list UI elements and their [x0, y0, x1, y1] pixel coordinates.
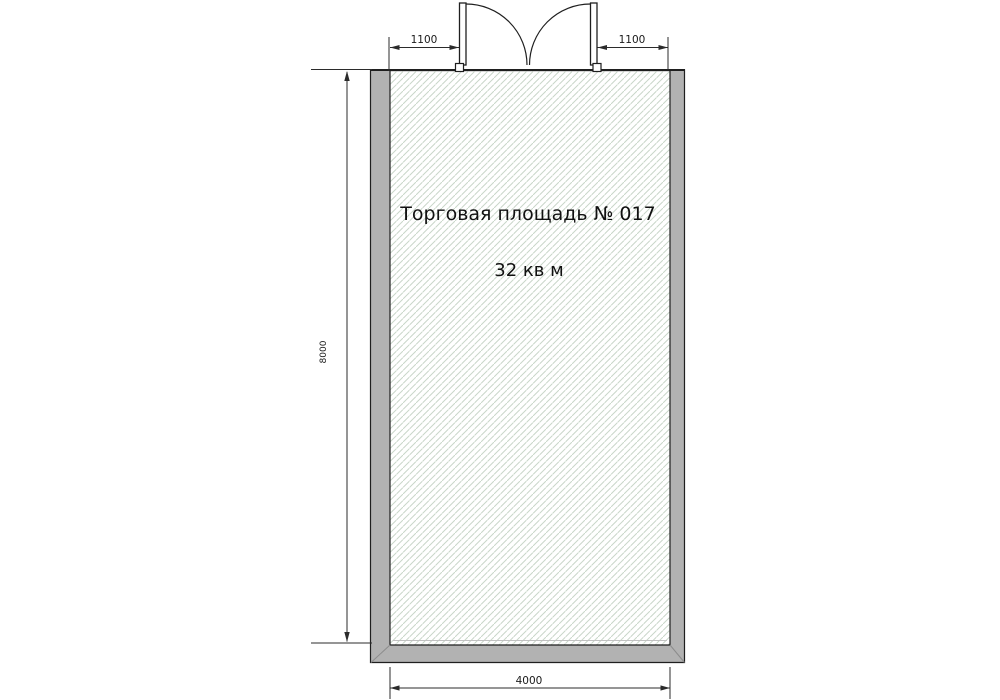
dim-width-value: 4000	[516, 675, 543, 687]
dim-door-left-arrow-west	[390, 45, 400, 50]
room-area-label: 32 кв м	[494, 260, 563, 281]
dim-width-arrow-east	[661, 685, 671, 690]
interior-floor-hatch	[390, 71, 670, 645]
dim-width: 4000	[390, 667, 670, 699]
door-leaf-left	[460, 3, 467, 65]
dim-door-right-arrow-west	[598, 45, 608, 50]
door-hinge-left	[456, 64, 464, 72]
door-leaf-right	[591, 3, 598, 65]
dim-height: 8000	[311, 70, 372, 644]
dim-door-right-arrow-east	[659, 45, 669, 50]
door-swing-arc-left	[466, 4, 527, 65]
dim-door-left-arrow-east	[450, 45, 460, 50]
dim-door-right: 1100	[598, 34, 669, 70]
dim-height-arrow-south	[344, 632, 349, 642]
dim-height-arrow-north	[344, 71, 349, 81]
dim-door-left: 1100	[389, 34, 459, 71]
dim-height-value: 8000	[319, 340, 329, 363]
floor-plan-canvas: 1100 1100 8000 4000 Т	[0, 0, 1000, 700]
floor-plan: 1100 1100 8000 4000 Т	[0, 0, 1000, 700]
dim-door-right-value: 1100	[619, 34, 646, 46]
dim-width-arrow-west	[390, 685, 400, 690]
entrance-door	[456, 3, 602, 72]
door-swing-arc-right	[530, 4, 591, 65]
door-hinge-right	[593, 64, 601, 72]
room-label: Торговая площадь № 017	[399, 203, 655, 225]
dim-door-left-value: 1100	[411, 34, 438, 46]
